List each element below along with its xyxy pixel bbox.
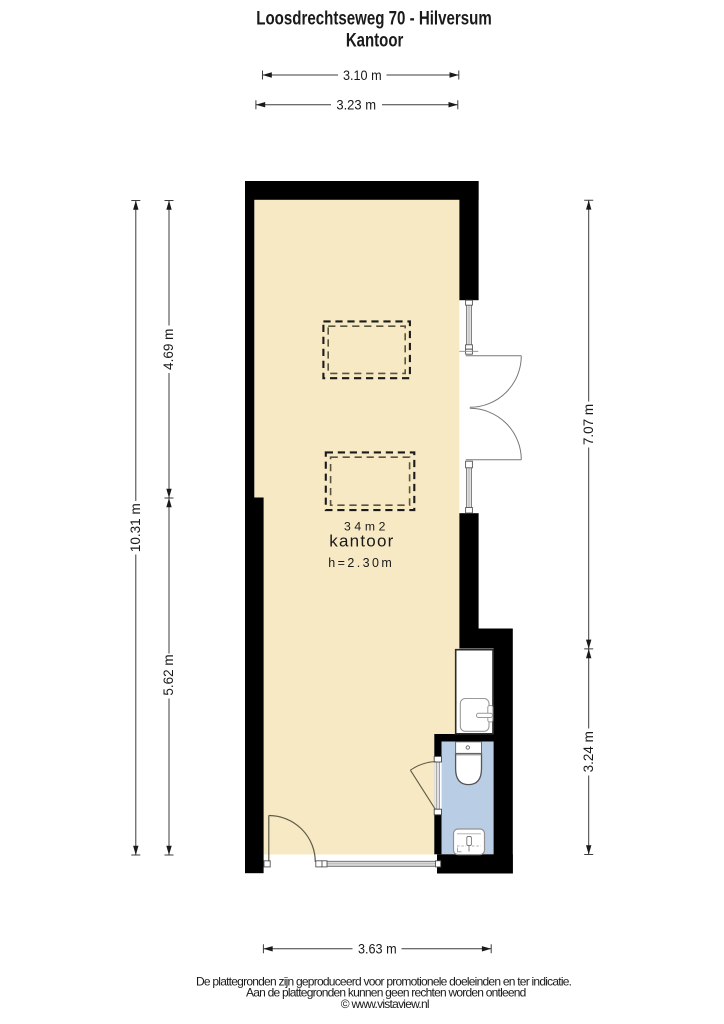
svg-text:10.31 m: 10.31 m bbox=[128, 503, 143, 552]
svg-text:Loosdrechtseweg 70 - Hilversum: Loosdrechtseweg 70 - Hilversum bbox=[256, 9, 492, 30]
svg-text:3.10 m: 3.10 m bbox=[343, 68, 382, 83]
svg-text:7.07 m: 7.07 m bbox=[581, 404, 596, 445]
svg-text:Kantoor: Kantoor bbox=[346, 30, 404, 51]
svg-text:kantoor: kantoor bbox=[329, 531, 393, 550]
svg-text:4.69 m: 4.69 m bbox=[161, 329, 176, 370]
svg-text:3.23 m: 3.23 m bbox=[336, 97, 376, 112]
svg-text:3.24 m: 3.24 m bbox=[581, 731, 596, 772]
svg-text:h=2.30m: h=2.30m bbox=[328, 556, 392, 570]
svg-text:5.62 m: 5.62 m bbox=[161, 654, 176, 695]
svg-text:© www.vistaview.nl: © www.vistaview.nl bbox=[341, 997, 430, 1011]
svg-text:3.63 m: 3.63 m bbox=[358, 942, 397, 957]
